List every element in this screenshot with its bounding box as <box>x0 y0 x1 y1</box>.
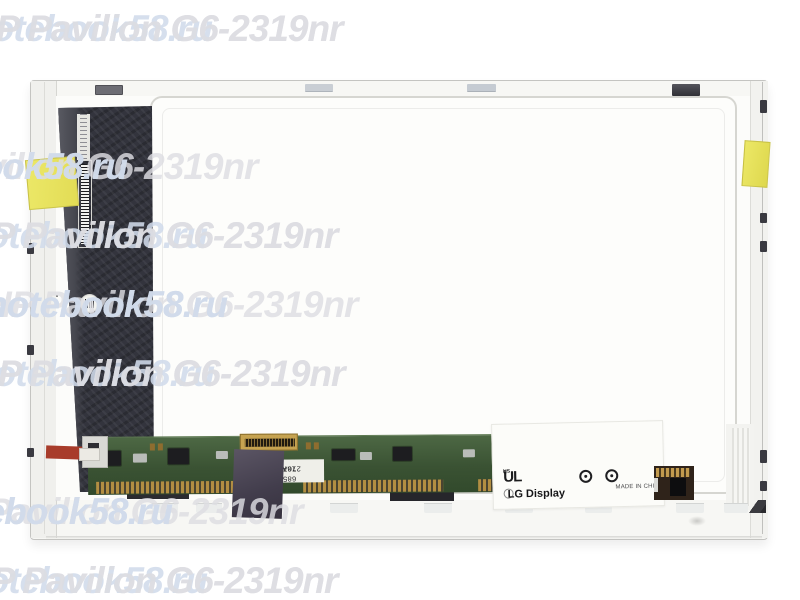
cert-circle-icon <box>579 470 592 483</box>
watermark-site-text: notebook58.ru <box>0 560 207 600</box>
yellow-tape-right <box>741 140 770 188</box>
pcb-component-silver <box>463 449 475 457</box>
pcb-serial-label: 685 16A 2707616 <box>278 459 324 482</box>
connector-gold-pins <box>656 468 690 477</box>
connector-side-pin <box>654 478 658 492</box>
pcb-capacitor <box>314 442 319 449</box>
vertical-model-label <box>77 114 90 160</box>
pcb-ic-chip <box>393 447 412 461</box>
cert-circle-dot <box>610 474 613 477</box>
bottom-notch <box>424 503 452 513</box>
pcb-ic-chip <box>332 449 355 460</box>
red-ribbon-cable <box>46 445 82 459</box>
watermark-model-text: HP Pavilion G6-2319nr <box>0 560 337 600</box>
pcb-component-silver <box>216 451 228 459</box>
bottom-notch <box>330 503 358 513</box>
left-edge-clip <box>27 345 34 355</box>
pcb-capacitor <box>158 443 163 450</box>
round-barcode-sticker <box>80 294 99 313</box>
product-photo-canvas: 685 16A 2707616 cULUS LG Display MADE IN… <box>0 0 800 600</box>
watermark-model-text: HP Pavilion G6-2319nr <box>0 8 342 50</box>
top-mount-tab-light-2 <box>467 84 496 92</box>
pcb-ic-chip <box>168 448 189 464</box>
bottom-notch <box>196 503 222 513</box>
pcb-gold-fingers <box>96 481 246 494</box>
cert-circle-icon <box>605 469 618 482</box>
cable-white-connector <box>79 448 100 461</box>
bottom-notch <box>676 503 704 513</box>
panel-left-edge-line <box>44 82 45 534</box>
right-edge-clip <box>760 241 767 252</box>
right-edge-clip <box>760 481 767 491</box>
watermark-site-text: notebook58.ru <box>0 8 212 50</box>
yellow-tape-left <box>25 156 79 210</box>
right-edge-clip <box>760 213 767 223</box>
barcode-icon <box>85 299 94 308</box>
watermark-model-text: HP Pavilion G6-2319nr <box>0 8 342 50</box>
watermark-model-text: HP Pavilion G6-2319nr <box>0 560 337 600</box>
left-edge-clip <box>27 448 34 457</box>
pcb-component-silver <box>360 452 372 460</box>
vertical-barcode-label <box>78 160 92 248</box>
ribbed-texture <box>732 428 750 506</box>
left-edge-clip <box>27 243 34 254</box>
certification-label: cULUS LG Display MADE IN CHINA <box>491 420 665 510</box>
top-mount-tab-light-1 <box>305 84 333 92</box>
top-mount-tab-dark-1 <box>95 85 123 95</box>
lvds-connector-slot <box>245 439 295 447</box>
ul-mark-suffix: US <box>503 469 510 475</box>
bottom-right-corner-bracket <box>744 500 766 513</box>
pcb-capacitor <box>150 443 155 450</box>
bottom-gray-mark <box>688 516 706 526</box>
dark-kapton-tape <box>232 449 284 519</box>
panel-screw-dot <box>56 295 58 297</box>
right-edge-clip <box>760 100 767 113</box>
lvds-connector <box>240 433 298 450</box>
backlight-connector <box>654 466 694 500</box>
cert-circle-dot <box>584 475 587 478</box>
pcb-capacitor <box>306 442 311 449</box>
top-mount-tab-dark-2 <box>672 84 700 96</box>
panel-bottom-edge-shadow <box>46 536 762 539</box>
bottom-notch <box>152 503 178 513</box>
pcb-component-silver <box>133 454 147 463</box>
right-edge-clip <box>760 450 767 463</box>
lg-logo-text: LG Display <box>508 487 566 500</box>
right-bottom-ribbed-bracket <box>726 424 754 510</box>
connector-black-cap <box>670 478 686 496</box>
